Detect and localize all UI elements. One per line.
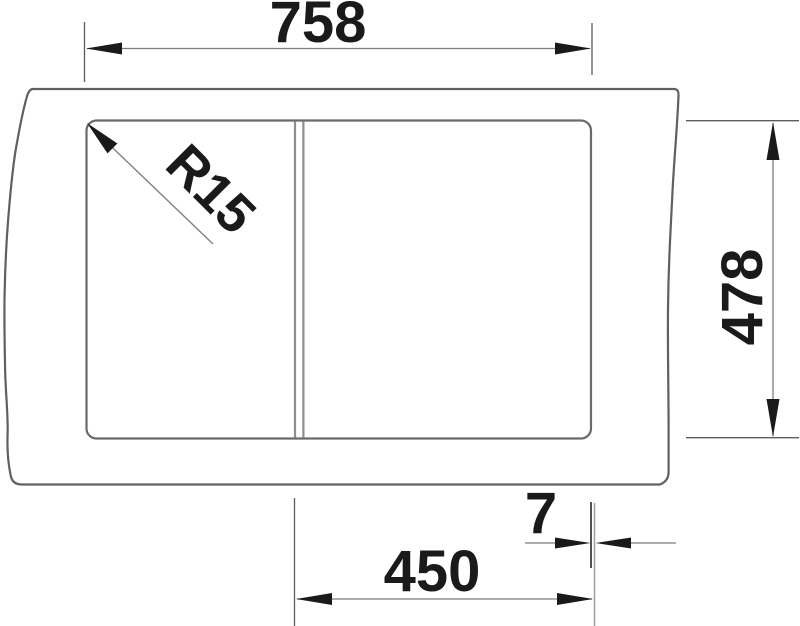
arrowhead-left	[296, 593, 332, 605]
edge-offset-label: 7	[525, 481, 557, 546]
bowl-width-label: 450	[384, 539, 481, 604]
arrowhead-up	[767, 122, 780, 160]
dimension-overall-width: 758	[85, 0, 593, 82]
overall-width-label: 758	[270, 0, 367, 55]
dimension-overall-height: 478	[686, 121, 799, 438]
arrowhead-right	[557, 593, 593, 605]
overall-height-label: 478	[710, 249, 775, 346]
sink-cutout-diagram: 758 478 450 7	[0, 0, 800, 626]
technical-drawing-canvas: 758 478 450 7	[0, 0, 800, 626]
dimension-corner-radius: R15	[87, 123, 267, 246]
arrowhead-inward-left	[555, 538, 591, 549]
dimension-edge-offset: 7	[525, 481, 676, 568]
arrowhead-left	[86, 43, 122, 55]
arrowhead-right	[555, 43, 591, 55]
corner-radius-label: R15	[154, 133, 266, 245]
arrowhead-down	[767, 399, 780, 437]
arrowhead-inward-right	[596, 538, 632, 549]
